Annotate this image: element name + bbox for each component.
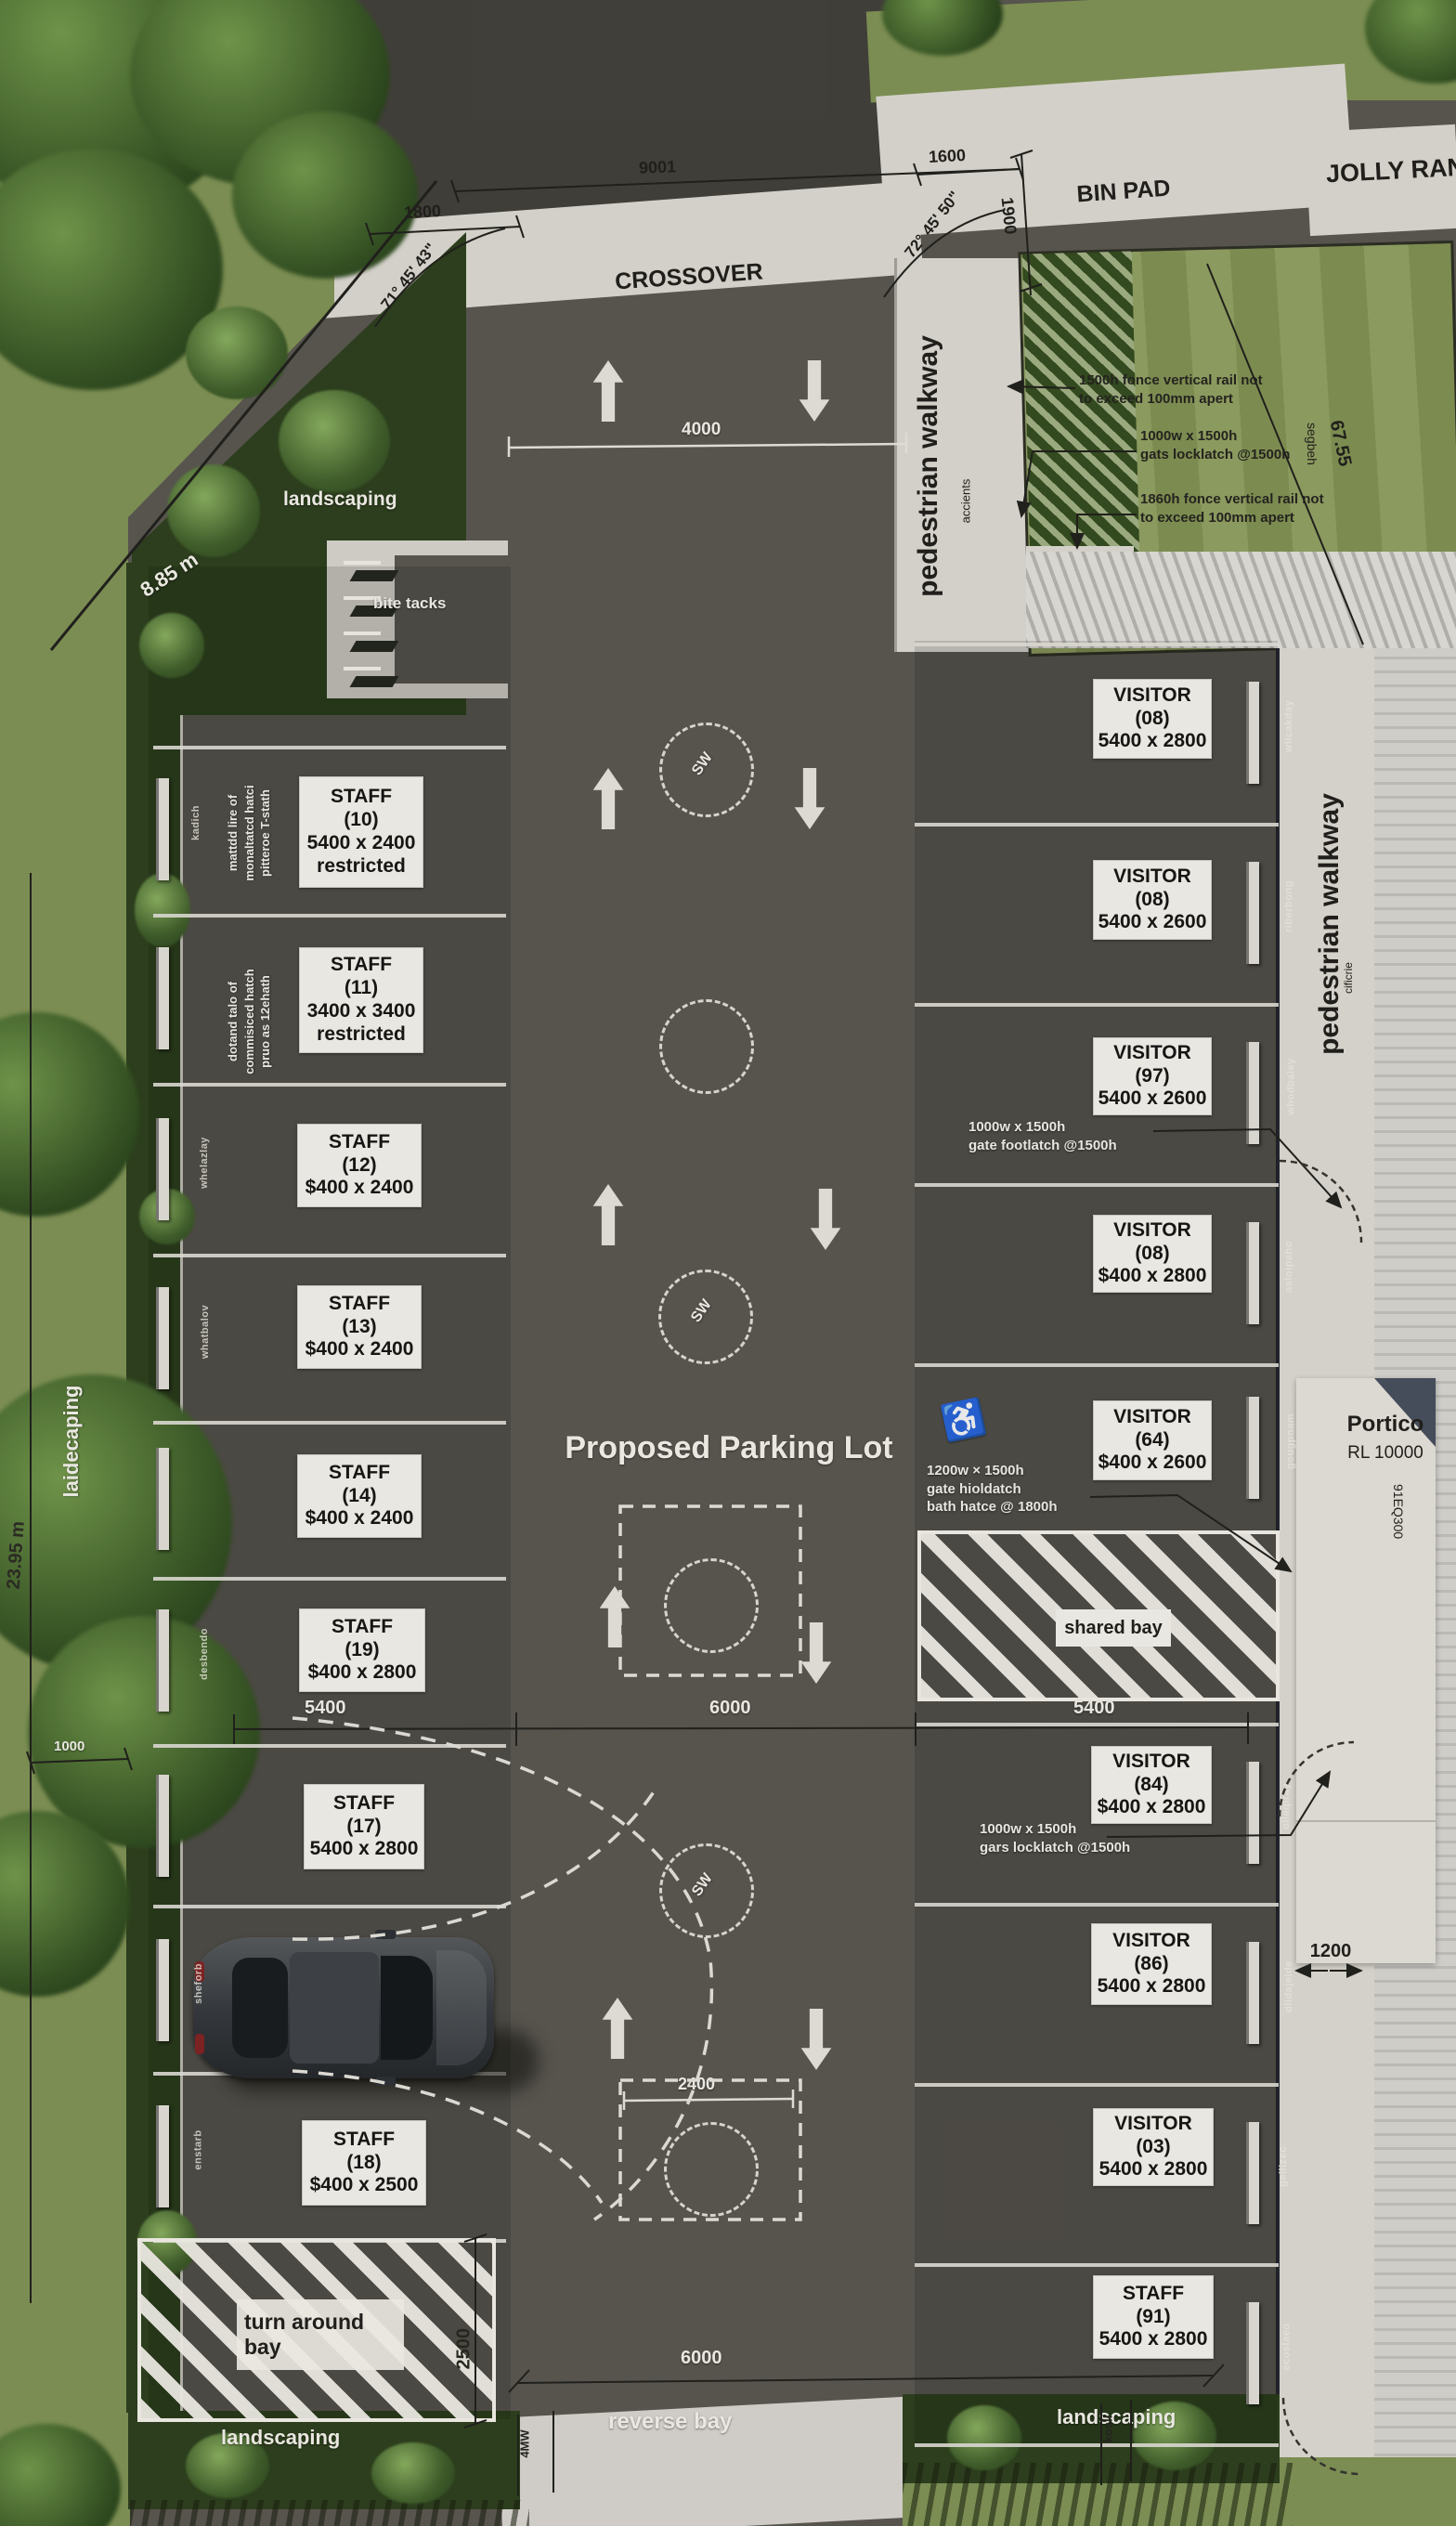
linework <box>0 0 1456 2526</box>
site-plan: SW SW SW CROSSOVER BIN PAD JOLLY RAN 180… <box>0 0 1456 2526</box>
